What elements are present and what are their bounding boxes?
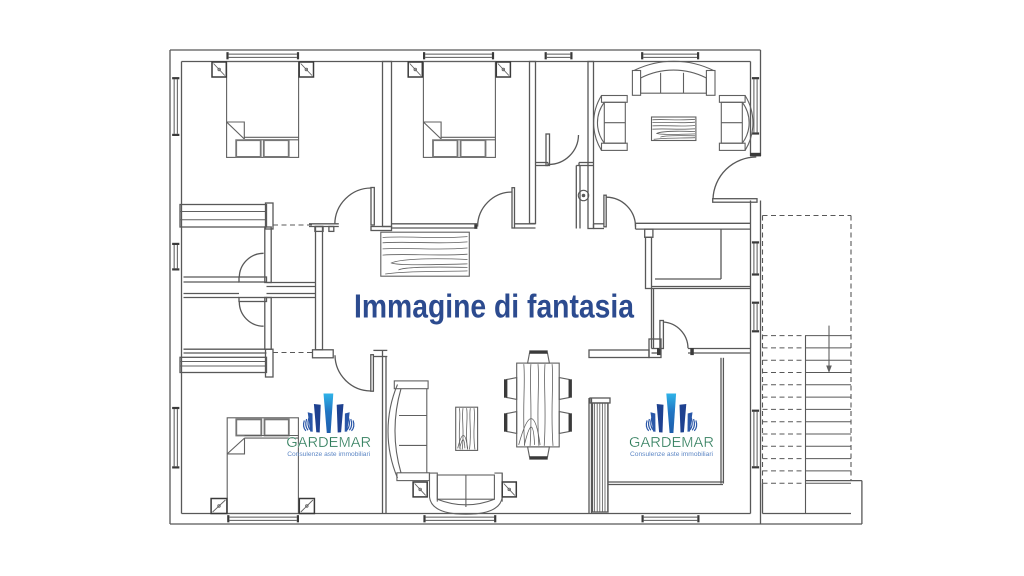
svg-text:GARDEMAR: GARDEMAR [629,434,714,451]
svg-text:GARDEMAR: GARDEMAR [286,434,371,451]
svg-text:Consulenze aste immobiliari: Consulenze aste immobiliari [287,451,370,458]
svg-text:Consulenze aste immobiliari: Consulenze aste immobiliari [630,451,713,458]
svg-text:Immagine di fantasia: Immagine di fantasia [354,289,634,326]
